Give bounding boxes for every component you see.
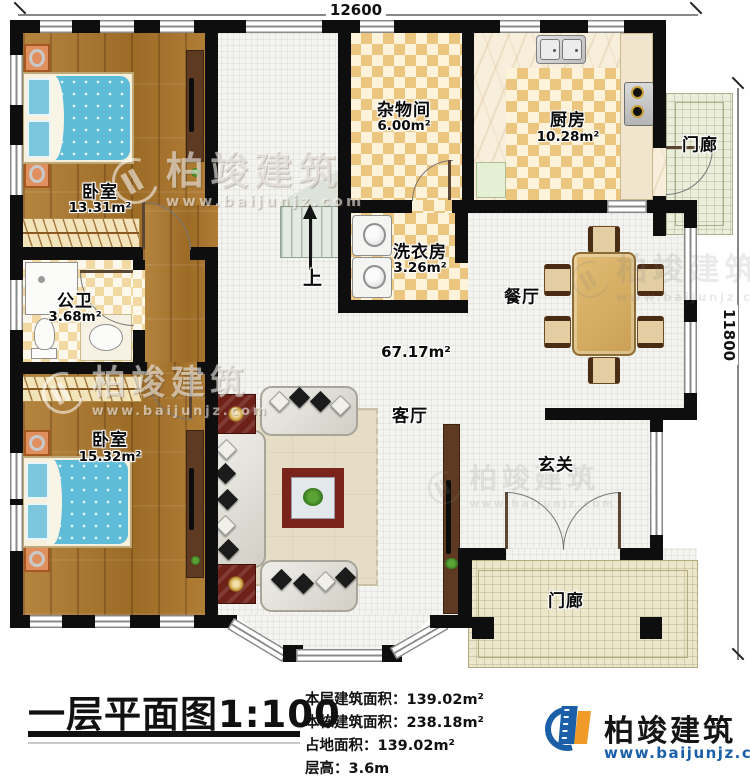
exterior-patch-right xyxy=(663,420,697,548)
room-label-foyer: 玄关 xyxy=(538,451,574,476)
wall xyxy=(10,615,30,628)
dimension-tick xyxy=(14,2,27,15)
wall xyxy=(650,420,663,432)
wall xyxy=(194,20,246,33)
bedroom1-bottom-wall xyxy=(10,247,143,260)
room-label-kitchen: 厨房 xyxy=(550,106,586,131)
stairs-up-arrow-icon xyxy=(303,204,317,219)
bed-quilt xyxy=(56,76,130,160)
side-table xyxy=(216,564,256,604)
storage-kitchen-wall xyxy=(462,20,474,213)
entry-door-right-panel xyxy=(618,492,621,549)
kitchen-right-wall xyxy=(653,20,666,148)
info-floor-area: 本层建筑面积：139.02m² xyxy=(305,688,484,709)
stove-burner-icon xyxy=(631,105,644,118)
bed-pillow xyxy=(26,462,49,499)
bedroom1-hall-wall xyxy=(205,32,218,205)
dimension-tick xyxy=(690,2,703,15)
sink-basin-icon xyxy=(562,39,582,60)
room-label-bedroom2: 卧室 xyxy=(92,426,128,451)
info-floor-height: 层高：3.6m xyxy=(305,757,389,778)
room-area-bathroom: 3.68m² xyxy=(48,309,101,325)
nightstand xyxy=(24,44,50,72)
nightstand xyxy=(24,160,50,188)
exterior-patch-top-right xyxy=(666,33,697,93)
dimension-height: 11800 xyxy=(720,305,738,365)
brand-logo-building-orange xyxy=(574,711,591,744)
room-area-kitchen: 10.28m² xyxy=(537,129,600,145)
stove-burner-icon xyxy=(631,86,644,99)
porch-column xyxy=(472,617,494,639)
kitchen-doorway-floor xyxy=(653,148,666,196)
wall xyxy=(72,20,100,33)
corridor-right-wall xyxy=(205,247,218,374)
shower-drain-icon xyxy=(38,276,45,283)
wall xyxy=(10,20,23,55)
wall xyxy=(130,615,160,628)
wall xyxy=(10,105,23,145)
side-table xyxy=(216,394,256,434)
bedroom2-door-panel xyxy=(189,374,192,418)
living-tv xyxy=(446,480,451,554)
bathroom-right-wall xyxy=(133,260,145,270)
info-footprint-area: 占地面积：139.02m² xyxy=(305,734,455,755)
laundry-bottom-wall xyxy=(338,300,468,313)
bathroom-door-panel xyxy=(80,270,133,273)
wall xyxy=(540,20,588,33)
foyer-bottom-wall xyxy=(458,548,506,560)
title-underline-thin xyxy=(28,742,300,744)
kitchen-pass-window xyxy=(607,200,647,213)
room-label-living: 客厅 xyxy=(392,402,428,427)
plan-title-text: 一层平面图 xyxy=(28,693,218,736)
floor-plan: 柏竣建筑www.baijunjz.com 柏竣建筑www.baijunjz.co… xyxy=(0,0,750,780)
wall xyxy=(10,499,23,505)
porch-column xyxy=(640,617,662,639)
kitchen-cabinet xyxy=(476,162,506,198)
wall xyxy=(394,20,500,33)
foyer-bottom-wall xyxy=(620,548,663,560)
bedroom1-wardrobe xyxy=(22,218,140,248)
storage-doorway-floor xyxy=(412,200,452,213)
bedroom1-door-panel xyxy=(142,202,145,249)
dining-table xyxy=(572,252,636,356)
laundry-right-wall xyxy=(455,213,468,263)
living-area-value: 67.17m² xyxy=(381,343,451,361)
bathroom-doorway-floor xyxy=(133,270,145,330)
storage-bottom-wall xyxy=(350,200,412,213)
plan-title: 一层平面图1:100 xyxy=(28,684,341,738)
wall xyxy=(10,330,23,453)
plant-icon xyxy=(191,168,200,177)
wall xyxy=(62,615,95,628)
room-label-storage: 杂物间 xyxy=(377,96,431,121)
bedroom1-tv xyxy=(189,78,194,132)
room-area-storage: 6.00m² xyxy=(377,118,430,134)
plant-icon xyxy=(303,488,323,506)
sink-basin-icon xyxy=(540,39,560,60)
stairs-up-label: 上 xyxy=(303,264,323,291)
room-label-bedroom1: 卧室 xyxy=(82,178,118,203)
wall xyxy=(684,300,697,322)
bedroom2-top-wall xyxy=(10,362,147,374)
nightstand xyxy=(24,430,50,456)
room-label-dining: 餐厅 xyxy=(504,283,540,308)
room-label-bathroom: 公卫 xyxy=(57,287,93,312)
dining-chair xyxy=(544,316,571,348)
dining-chair xyxy=(544,264,571,296)
dining-foyer-wall xyxy=(545,408,697,420)
room-area-bedroom2: 15.32m² xyxy=(79,449,142,465)
dining-chair xyxy=(588,226,620,253)
plant-icon xyxy=(191,556,200,565)
stairs-up-arrow-line xyxy=(309,218,312,270)
living-porch-wall xyxy=(458,560,472,628)
wall xyxy=(684,200,697,228)
bed-pillow xyxy=(27,78,51,116)
brand-website: www.baijunjz.com xyxy=(604,744,750,762)
dimension-line-right xyxy=(737,88,739,660)
entry-door-left-panel xyxy=(505,492,508,549)
bay-window-center xyxy=(296,649,388,662)
room-label-porch-bottom: 门廊 xyxy=(548,587,584,612)
washer-door-icon xyxy=(363,223,386,247)
sink-icon xyxy=(89,324,123,351)
bed-quilt xyxy=(54,460,128,544)
bedroom2-top-wall xyxy=(197,362,218,374)
bedroom2-doorway-floor xyxy=(147,362,197,374)
room-label-laundry: 洗衣房 xyxy=(393,238,447,263)
bedroom2-tv xyxy=(189,468,194,530)
bedroom2-wardrobe xyxy=(22,376,142,402)
dining-chair xyxy=(637,264,664,296)
plant-icon xyxy=(445,558,458,569)
title-underline-thick xyxy=(28,731,300,737)
storage-door-panel xyxy=(448,160,451,200)
bed-pillow xyxy=(27,120,51,158)
dimension-width: 12600 xyxy=(326,1,386,19)
wall xyxy=(10,195,23,280)
hall-storage-wall xyxy=(338,32,351,300)
dining-chair xyxy=(588,357,620,384)
bedroom2-right-wall xyxy=(205,374,218,628)
info-building-area: 本栋建筑面积：238.18m² xyxy=(305,711,484,732)
room-area-laundry: 3.26m² xyxy=(393,260,446,276)
bed-pillow xyxy=(26,503,49,540)
kitchen-bottom-wall xyxy=(452,200,697,213)
washer-door-icon xyxy=(363,265,386,289)
wall xyxy=(134,20,160,33)
dining-chair xyxy=(637,316,664,348)
nightstand xyxy=(24,546,50,572)
room-area-bedroom1: 13.31m² xyxy=(69,200,132,216)
room-label-porch-top: 门廊 xyxy=(682,131,718,156)
brand-logo-icon xyxy=(545,701,601,759)
porch-bottom-floor xyxy=(468,560,698,668)
